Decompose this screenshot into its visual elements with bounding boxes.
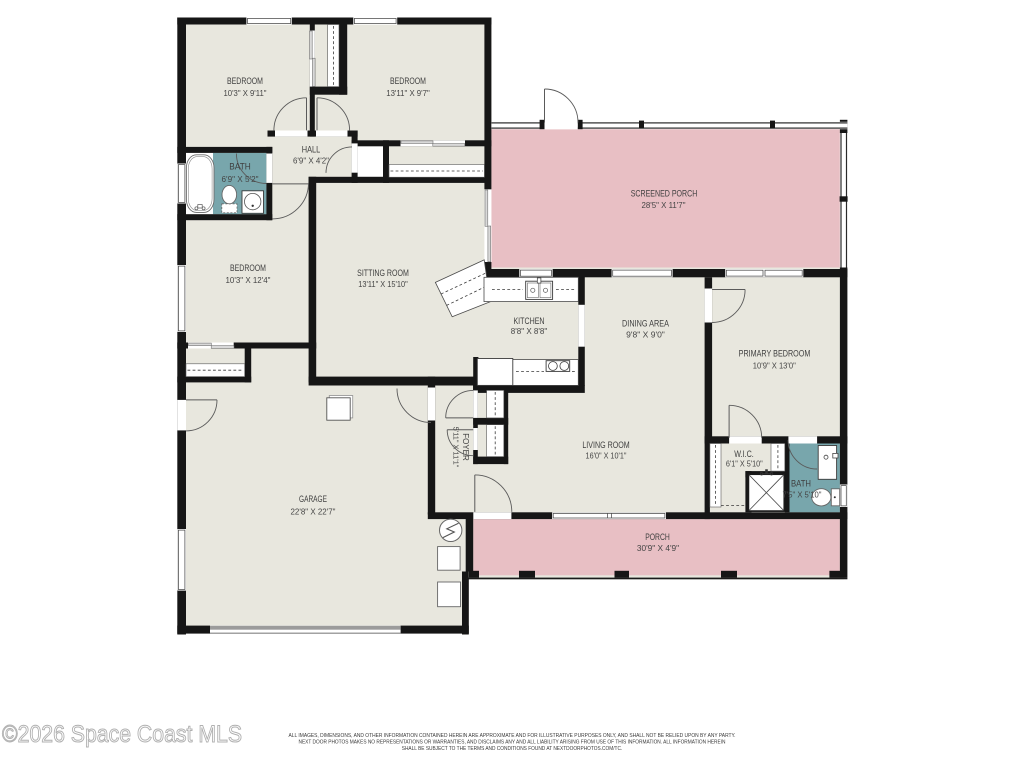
svg-text:5'11" X 11'1": 5'11" X 11'1"	[452, 427, 461, 468]
svg-text:SCREENED PORCH: SCREENED PORCH	[631, 189, 698, 199]
svg-text:KITCHEN: KITCHEN	[513, 316, 544, 326]
svg-text:10'9" X 13'0": 10'9" X 13'0"	[753, 361, 796, 370]
svg-text:BEDROOM: BEDROOM	[227, 76, 263, 86]
svg-text:FOYER: FOYER	[461, 433, 470, 461]
svg-text:7'5" X 5'10": 7'5" X 5'10"	[783, 491, 822, 500]
svg-text:SHALL BE SUBJECT TO THE TERMS: SHALL BE SUBJECT TO THE TERMS AND CONDIT…	[402, 746, 623, 752]
svg-text:30'9" X 4'9": 30'9" X 4'9"	[637, 544, 679, 553]
svg-text:10'3" X 12'4": 10'3" X 12'4"	[226, 276, 271, 285]
svg-text:LIVING ROOM: LIVING ROOM	[582, 440, 629, 450]
svg-text:16'0" X 10'1": 16'0" X 10'1"	[586, 452, 627, 461]
svg-text:BATH: BATH	[229, 162, 251, 172]
svg-text:BATH: BATH	[791, 479, 811, 489]
svg-text:6'9" X 4'2": 6'9" X 4'2"	[293, 157, 329, 166]
svg-text:28'5" X 11'7": 28'5" X 11'7"	[642, 201, 686, 210]
svg-text:HALL: HALL	[302, 145, 321, 155]
svg-text:10'3" X 9'11": 10'3" X 9'11"	[224, 89, 267, 98]
svg-text:13'11" X 15'10": 13'11" X 15'10"	[358, 280, 407, 289]
svg-text:PRIMARY BEDROOM: PRIMARY BEDROOM	[739, 349, 811, 359]
svg-text:22'8" X 22'7": 22'8" X 22'7"	[291, 507, 336, 516]
svg-text:SITTING ROOM: SITTING ROOM	[357, 268, 409, 278]
svg-text:6'1" X 5'10": 6'1" X 5'10"	[726, 459, 763, 468]
svg-text:BEDROOM: BEDROOM	[230, 263, 266, 273]
svg-text:BEDROOM: BEDROOM	[390, 76, 426, 86]
svg-text:NEXT DOOR PHOTOS MAKES NO REPR: NEXT DOOR PHOTOS MAKES NO REPRESENTATION…	[299, 740, 726, 746]
svg-text:GARAGE: GARAGE	[299, 494, 327, 504]
svg-text:6'9" X 5'2": 6'9" X 5'2"	[222, 175, 259, 184]
svg-text:©2026 Space Coast MLS: ©2026 Space Coast MLS	[2, 721, 242, 748]
svg-text:9'8" X 9'0": 9'8" X 9'0"	[626, 330, 665, 339]
svg-text:13'11" X 9'7": 13'11" X 9'7"	[386, 89, 430, 98]
svg-text:8'8" X 8'8": 8'8" X 8'8"	[511, 327, 548, 336]
svg-text:PORCH: PORCH	[645, 532, 670, 542]
svg-text:ALL IMAGES, DIMENSIONS, AND OT: ALL IMAGES, DIMENSIONS, AND OTHER INFORM…	[289, 733, 736, 739]
svg-text:DINING AREA: DINING AREA	[622, 319, 669, 329]
svg-text:W.I.C.: W.I.C.	[734, 449, 754, 459]
